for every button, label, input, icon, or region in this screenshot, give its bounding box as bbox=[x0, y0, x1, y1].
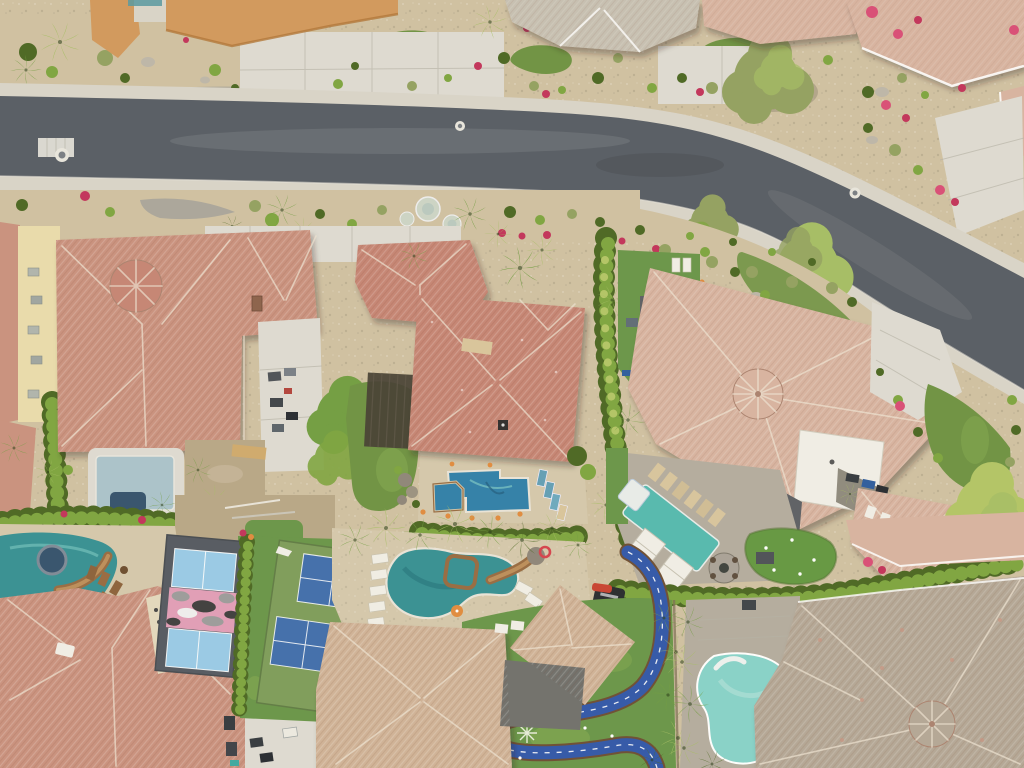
photo-canvas: Overhead view of a curving asphalt stree… bbox=[0, 0, 1024, 768]
atmospheric-haze bbox=[0, 0, 1024, 768]
aerial-neighborhood-photo: Overhead view of a curving asphalt stree… bbox=[0, 0, 1024, 768]
